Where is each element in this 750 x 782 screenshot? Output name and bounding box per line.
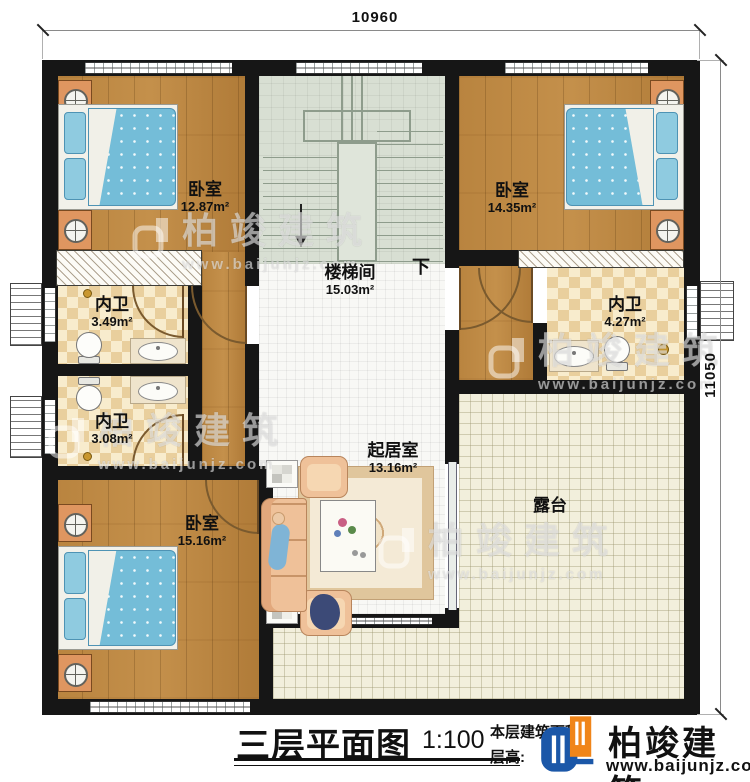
room-area: 3.49m²: [62, 315, 162, 330]
wall: [445, 60, 459, 268]
stair-landing: [337, 142, 377, 262]
room-name: 楼梯间: [290, 263, 410, 283]
extension-line: [699, 30, 700, 59]
pillow: [656, 158, 678, 200]
room-name: 卧室: [452, 181, 572, 201]
window: [85, 62, 232, 74]
brand-url: www.baijunjz.com: [606, 756, 750, 776]
door-leaf: [182, 414, 184, 466]
nightstand: [650, 210, 684, 250]
wall: [56, 364, 188, 376]
brand-logo-icon: [538, 714, 604, 779]
pillow: [656, 112, 678, 154]
room-label-bath2: 内卫 3.08m²: [62, 412, 162, 446]
sink: [138, 342, 178, 361]
extension-line: [42, 30, 43, 59]
dimension-width-value: 10960: [320, 9, 430, 26]
window: [505, 62, 648, 74]
window: [90, 701, 250, 713]
toilet: [604, 336, 630, 363]
door-leaf: [182, 286, 184, 338]
room-name: 内卫: [570, 295, 680, 315]
door-leaf: [531, 268, 533, 323]
pillow: [64, 598, 86, 640]
stair-arrow-stem: [300, 204, 302, 238]
fixture-knob: [83, 452, 92, 461]
wall: [245, 60, 259, 286]
door-leaf: [245, 286, 247, 344]
corridor1-floor: [202, 252, 245, 466]
wardrobe: [518, 250, 684, 268]
person-head: [272, 512, 285, 525]
lamp-icon: [656, 219, 680, 243]
room-area: 13.16m²: [333, 461, 453, 476]
sheet-scale: 1:100: [422, 726, 485, 755]
room-label-living: 起居室 13.16m²: [333, 441, 453, 475]
bed-sheet: [89, 109, 119, 205]
window: [44, 400, 56, 454]
room-name: 露台: [505, 496, 595, 516]
window: [296, 62, 422, 74]
bay-window: [10, 283, 42, 346]
lamp-icon: [64, 219, 88, 243]
dimension-line-top: [42, 30, 700, 31]
room-label-stairwell: 楼梯间 15.03m²: [290, 263, 410, 297]
terrace-strip-floor: [273, 628, 459, 699]
sink: [554, 346, 594, 367]
terrace-floor: [459, 394, 684, 699]
toilet: [76, 332, 102, 358]
bay-window: [10, 396, 42, 458]
toilet-tank: [606, 362, 628, 371]
room-area: 12.87m²: [145, 200, 265, 215]
stair-upper-flight: [341, 76, 367, 140]
room-area: 15.16m²: [142, 534, 262, 549]
title-underline-thin: [234, 765, 520, 766]
lamp-icon: [64, 663, 88, 687]
wardrobe: [56, 250, 202, 286]
window: [44, 288, 56, 342]
stair-arrow-head: [295, 236, 307, 247]
door-leaf: [459, 268, 461, 330]
side-table: [266, 460, 298, 488]
window: [686, 286, 698, 338]
floor-drain: [658, 344, 669, 355]
dimension-line-right: [720, 60, 721, 715]
person-sitting: [310, 594, 340, 630]
nightstand: [58, 504, 92, 542]
wall: [42, 60, 58, 715]
room-name: 起居室: [333, 441, 453, 461]
room-name: 内卫: [62, 412, 162, 432]
room-name: 卧室: [142, 514, 262, 534]
room-area: 3.08m²: [62, 432, 162, 447]
bay-window: [700, 281, 734, 341]
wall: [445, 250, 518, 266]
room-area: 15.03m²: [290, 283, 410, 298]
flower-icon: [348, 526, 356, 534]
room-label-bedroom3: 卧室 15.16m²: [142, 514, 262, 548]
floor-plan-sheet: 柏竣建筑 www.baijunjz.com 柏竣建筑 www.baijunjz.…: [0, 0, 750, 782]
room-label-terrace: 露台: [505, 496, 595, 516]
wall: [42, 466, 273, 480]
lamp-icon: [64, 513, 88, 537]
nightstand: [58, 210, 92, 250]
toilet: [76, 385, 102, 411]
pillow: [64, 112, 86, 154]
dimension-height-value: 11050: [702, 352, 719, 398]
wall: [245, 344, 259, 466]
cup-icon: [352, 550, 358, 556]
sink: [138, 382, 178, 401]
stair-treads-right: [377, 130, 443, 262]
nightstand: [58, 654, 92, 692]
room-label-bath3: 内卫 4.27m²: [570, 295, 680, 329]
terrace-glass-door: [448, 462, 457, 610]
room-label-bedroom1: 卧室 12.87m²: [145, 180, 265, 214]
room-name: 卧室: [145, 180, 265, 200]
flower-icon: [338, 518, 347, 527]
wall: [445, 380, 700, 394]
flower-icon: [334, 530, 341, 537]
room-area: 4.27m²: [570, 315, 680, 330]
room-name: 内卫: [62, 295, 162, 315]
bed-sheet: [89, 551, 119, 645]
stair-direction-label: 下: [412, 253, 430, 279]
title-underline: [234, 758, 520, 761]
room-area: 14.35m²: [452, 201, 572, 216]
coffee-table: [320, 500, 376, 572]
toilet-tank: [78, 377, 100, 385]
pillow: [64, 552, 86, 594]
pillow: [64, 158, 86, 200]
room-label-bath1: 内卫 3.49m²: [62, 295, 162, 329]
cup-icon: [360, 552, 366, 558]
bed-sheet: [623, 109, 653, 205]
room-label-bedroom2: 卧室 14.35m²: [452, 181, 572, 215]
